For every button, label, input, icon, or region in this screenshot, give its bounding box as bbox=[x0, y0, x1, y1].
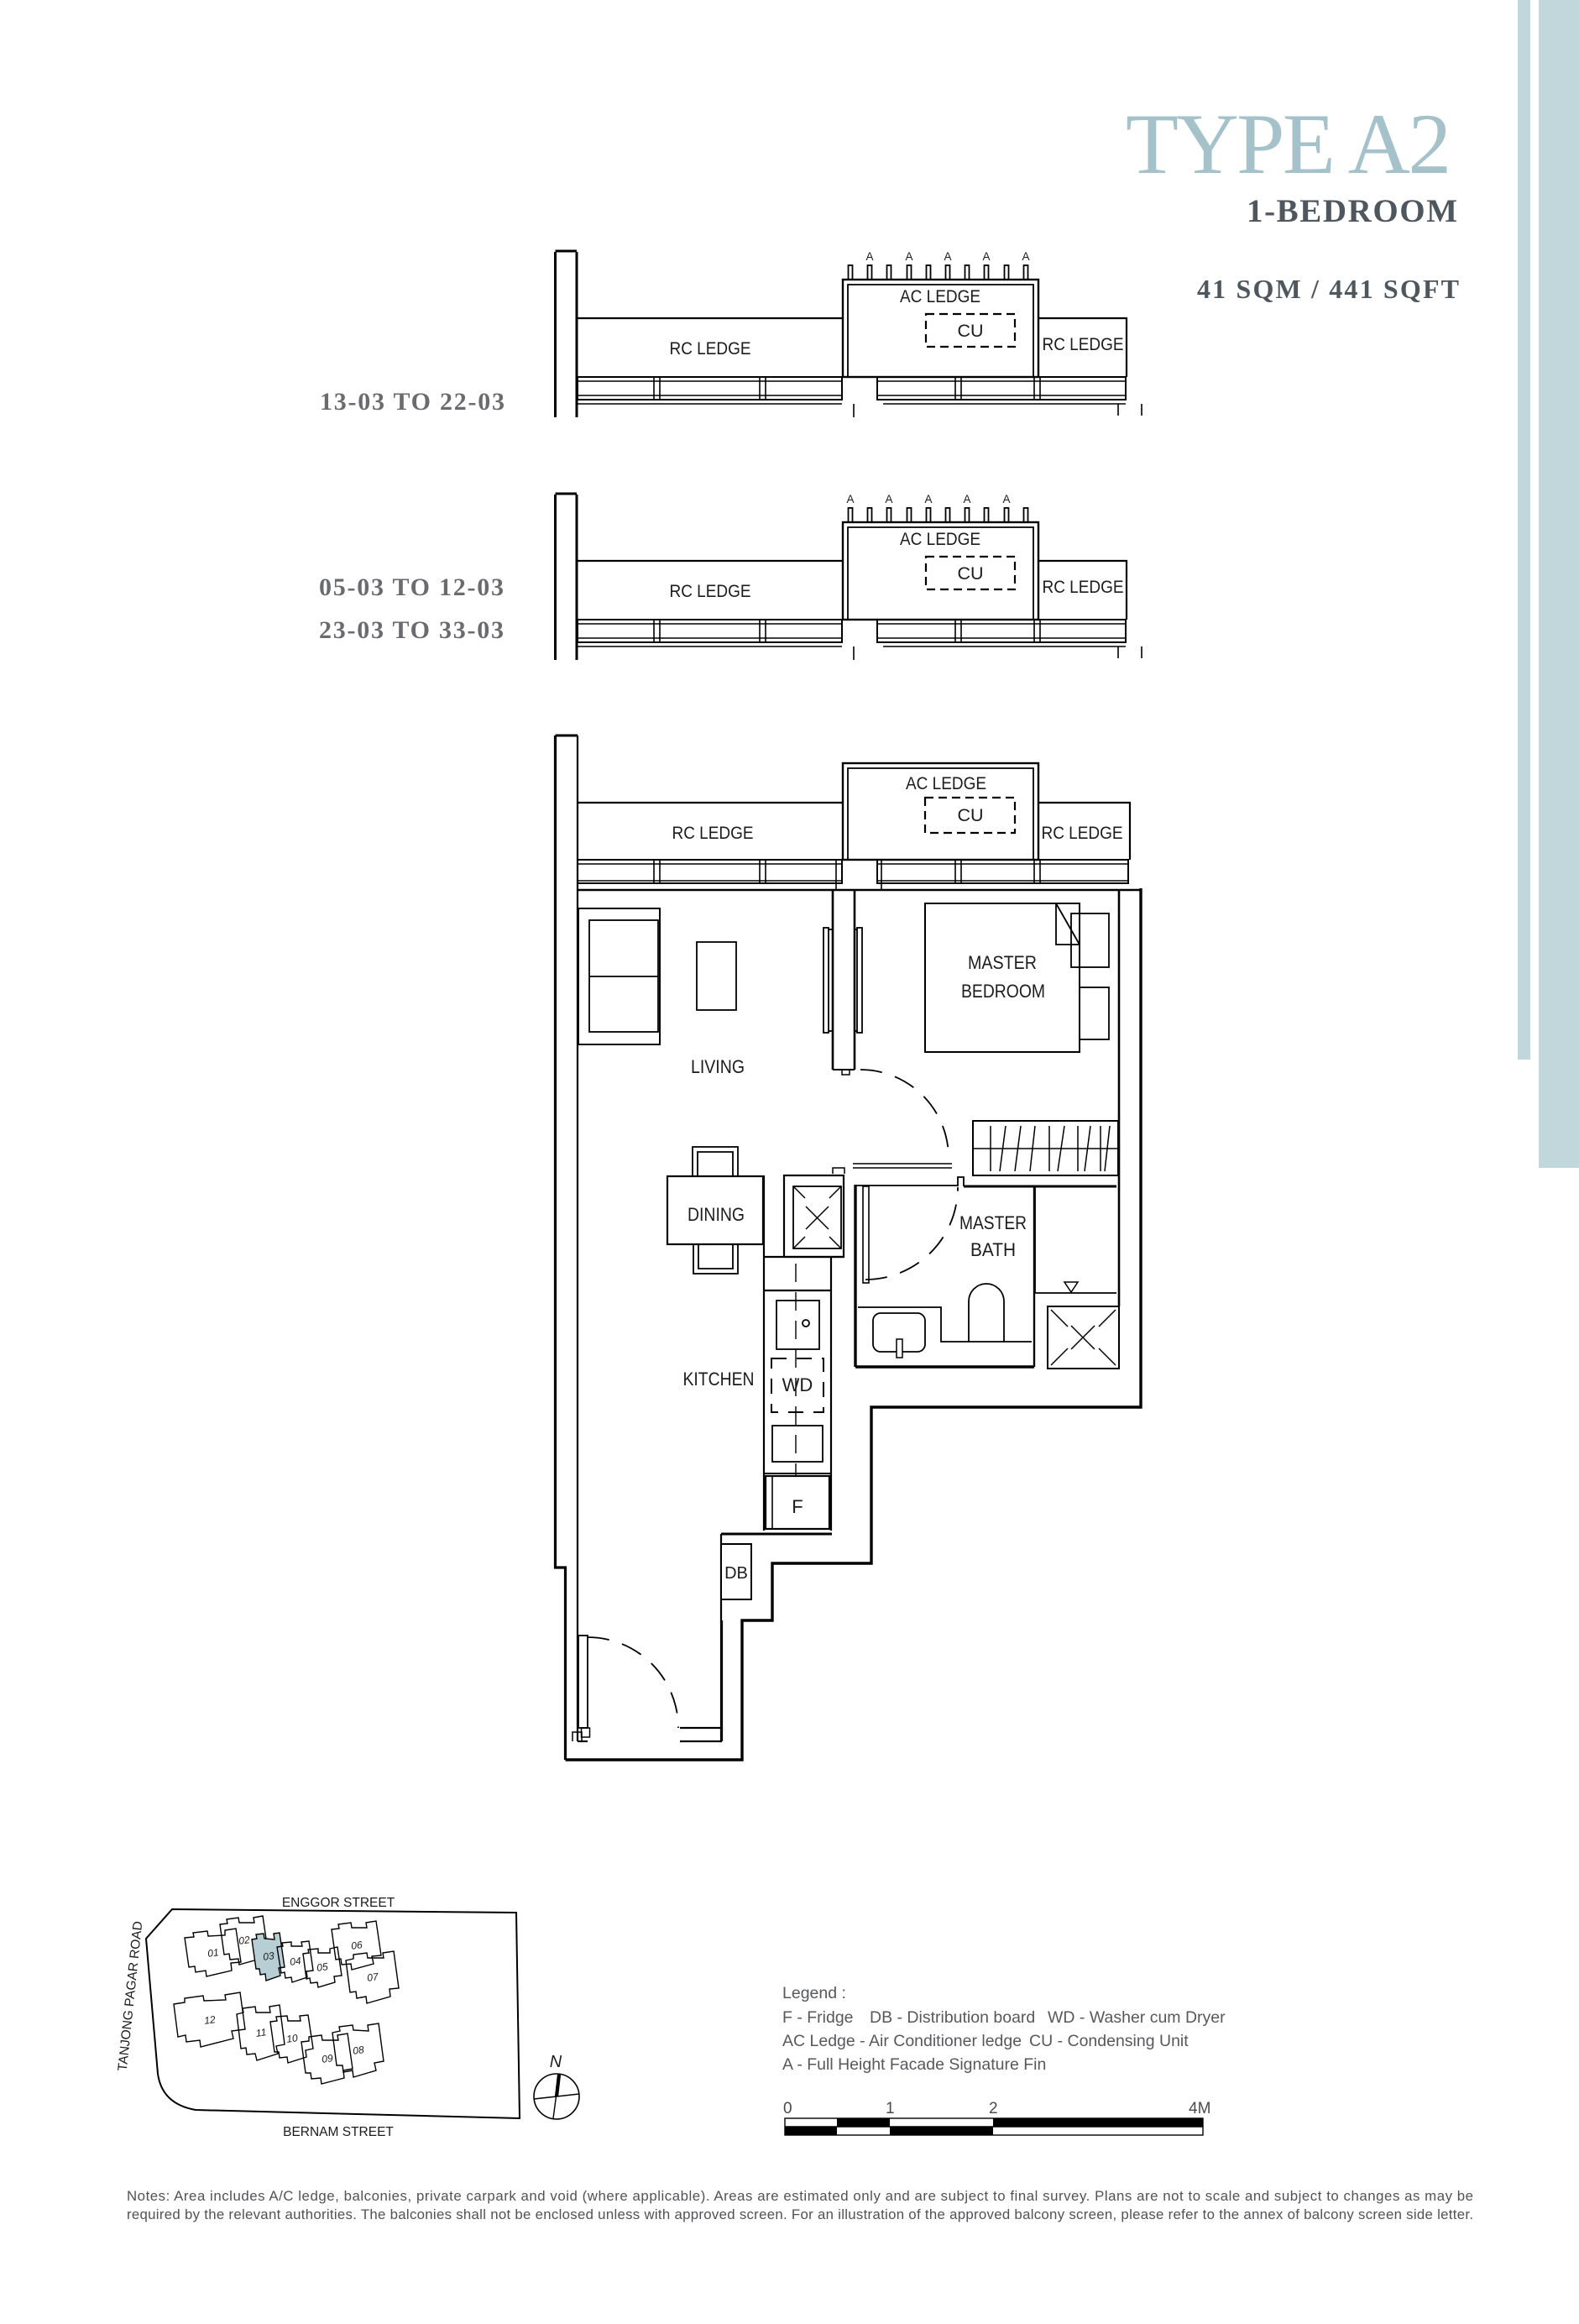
svg-text:AC LEDGE: AC LEDGE bbox=[900, 286, 980, 306]
svg-text:CU - Condensing Unit: CU - Condensing Unit bbox=[1029, 2032, 1189, 2050]
svg-text:A - Full Height Facade Signatu: A - Full Height Facade Signature Fin bbox=[782, 2055, 1046, 2074]
svg-text:DB: DB bbox=[724, 1564, 748, 1583]
svg-text:2: 2 bbox=[989, 2100, 998, 2117]
svg-text:AC LEDGE: AC LEDGE bbox=[906, 773, 986, 793]
svg-text:WD - Washer cum Dryer: WD - Washer cum Dryer bbox=[1048, 2008, 1226, 2027]
svg-text:0: 0 bbox=[783, 2100, 792, 2117]
svg-text:RC LEDGE: RC LEDGE bbox=[1043, 577, 1124, 597]
svg-text:A: A bbox=[1022, 250, 1029, 263]
svg-text:CU: CU bbox=[957, 563, 983, 584]
svg-text:A: A bbox=[944, 250, 951, 263]
svg-text:BERNAM STREET: BERNAM STREET bbox=[283, 2125, 394, 2139]
svg-text:MASTER: MASTER bbox=[968, 952, 1037, 973]
svg-text:DINING: DINING bbox=[688, 1204, 745, 1225]
svg-text:08: 08 bbox=[352, 2044, 364, 2057]
svg-text:A: A bbox=[982, 250, 990, 263]
svg-text:AC LEDGE: AC LEDGE bbox=[900, 529, 980, 549]
svg-text:ENGGOR STREET: ENGGOR STREET bbox=[282, 1896, 395, 1910]
svg-text:06: 06 bbox=[350, 1939, 363, 1952]
svg-text:10: 10 bbox=[285, 2032, 298, 2045]
svg-text:Notes: Area includes A/C ledge: Notes: Area includes A/C ledge, balconie… bbox=[127, 2188, 1473, 2204]
svg-text:F: F bbox=[792, 1496, 803, 1517]
svg-text:RC LEDGE: RC LEDGE bbox=[1042, 823, 1123, 843]
svg-text:04: 04 bbox=[289, 1955, 301, 1968]
svg-text:A: A bbox=[885, 493, 892, 505]
svg-text:09: 09 bbox=[321, 2052, 333, 2065]
svg-text:A: A bbox=[963, 493, 970, 505]
svg-text:1: 1 bbox=[886, 2100, 895, 2117]
svg-text:DB - Distribution board: DB - Distribution board bbox=[870, 2008, 1035, 2027]
svg-text:Legend :: Legend : bbox=[782, 1984, 846, 2002]
svg-text:LIVING: LIVING bbox=[691, 1056, 745, 1077]
svg-text:N: N bbox=[550, 2053, 562, 2071]
svg-text:F - Fridge: F - Fridge bbox=[782, 2008, 854, 2027]
svg-text:RC LEDGE: RC LEDGE bbox=[672, 823, 754, 843]
svg-text:A: A bbox=[846, 493, 854, 505]
svg-text:TYPE A2: TYPE A2 bbox=[1126, 97, 1451, 192]
svg-text:AC Ledge - Air Conditioner led: AC Ledge - Air Conditioner ledge bbox=[782, 2032, 1022, 2050]
svg-text:RC LEDGE: RC LEDGE bbox=[670, 581, 751, 601]
svg-text:12: 12 bbox=[203, 2013, 216, 2027]
svg-text:BATH: BATH bbox=[970, 1239, 1016, 1260]
svg-text:03: 03 bbox=[262, 1950, 274, 1963]
svg-text:A: A bbox=[1002, 493, 1010, 505]
svg-text:WD: WD bbox=[782, 1374, 813, 1395]
svg-text:A: A bbox=[905, 250, 912, 263]
svg-text:CU: CU bbox=[957, 321, 983, 341]
svg-text:05: 05 bbox=[316, 1960, 328, 1974]
svg-text:MASTER: MASTER bbox=[959, 1212, 1027, 1233]
svg-text:KITCHEN: KITCHEN bbox=[683, 1369, 755, 1390]
svg-text:02: 02 bbox=[238, 1934, 250, 1947]
svg-text:A: A bbox=[865, 250, 873, 263]
svg-text:RC LEDGE: RC LEDGE bbox=[1043, 334, 1124, 354]
svg-text:BEDROOM: BEDROOM bbox=[961, 981, 1045, 1002]
svg-text:4M: 4M bbox=[1189, 2100, 1210, 2117]
svg-text:RC LEDGE: RC LEDGE bbox=[670, 338, 751, 359]
svg-text:11: 11 bbox=[255, 2026, 267, 2039]
svg-text:A: A bbox=[924, 493, 932, 505]
svg-text:required by the relevant autho: required by the relevant authorities. Th… bbox=[127, 2206, 1473, 2222]
svg-text:CU: CU bbox=[957, 805, 983, 825]
svg-text:01: 01 bbox=[207, 1946, 219, 1960]
svg-text:1-BEDROOM: 1-BEDROOM bbox=[1247, 193, 1457, 229]
